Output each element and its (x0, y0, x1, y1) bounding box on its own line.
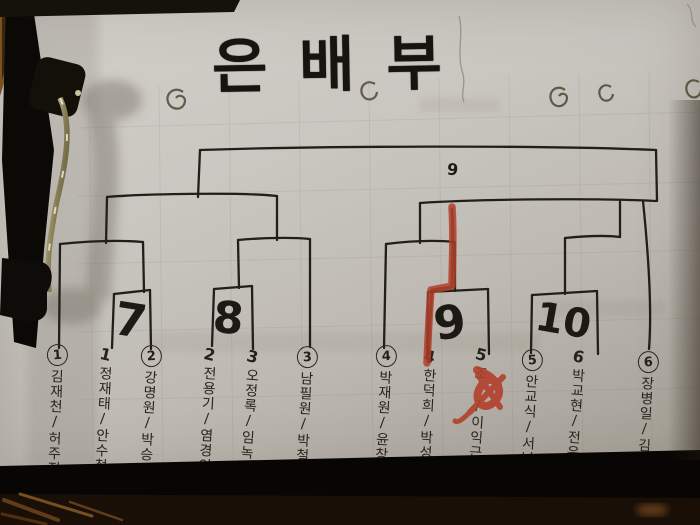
final-line-mark: 9 (446, 159, 459, 179)
team-seed: 1 (99, 346, 113, 364)
team-players: 오정록/임녹연 (238, 368, 259, 476)
team-players: 장병일/김청천 (635, 376, 655, 484)
match-number-7: 7 (110, 291, 150, 349)
match-number-9: 9 (430, 293, 469, 351)
team-players: 조 /이익근 (467, 366, 488, 461)
team-seed: 6 (571, 348, 586, 366)
team-players: 정재태/안수철 (93, 366, 113, 474)
team-seed: 2 (203, 346, 217, 364)
team-column-1: 1김재천/허주진 (38, 344, 73, 477)
team-players: 남필원/박철모 (294, 371, 314, 479)
team-seed-circled: 5 (521, 349, 543, 372)
team-players: 김재천/허주진 (46, 369, 64, 476)
team-seed: 5 (474, 346, 489, 364)
team-players: 박교현/전윤원 (564, 368, 585, 476)
team-seed-circled: 3 (296, 346, 318, 369)
team-seed-circled: 4 (375, 345, 397, 368)
team-players: 강명원/박승민 (138, 370, 158, 478)
team-players: 한덕희/박성수 (417, 368, 437, 476)
team-players: 전용기/염경인 (197, 366, 217, 474)
team-seed: 4 (423, 348, 437, 366)
team-seed: 3 (245, 348, 260, 366)
team-seed-circled: 6 (637, 351, 659, 374)
team-seed-circled: 2 (140, 345, 162, 368)
team-seed-circled: 1 (46, 343, 68, 366)
match-number-10: 10 (532, 294, 595, 349)
team-players: 박재원/윤창석 (373, 370, 393, 478)
photo-of-tournament-bracket: 7 8 9 10 9 은배부 1김재천/허주진1정재태/안수철2강명원/박승민2… (0, 0, 700, 525)
match-number-8: 8 (211, 292, 246, 345)
page-title: 은배부 (211, 13, 512, 105)
team-players: 안교식/서남기 (519, 374, 539, 482)
